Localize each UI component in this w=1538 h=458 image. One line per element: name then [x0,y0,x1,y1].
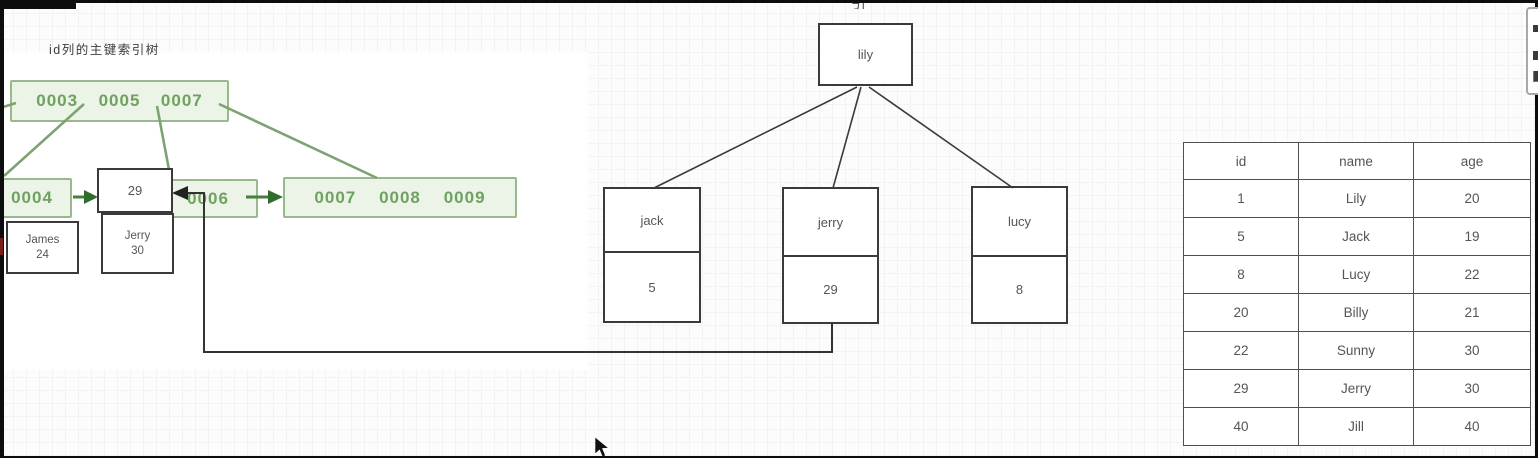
table-row: 20Billy21 [1184,294,1531,332]
btree-root-key: 0007 [161,91,203,111]
btree-leaf-key: 0008 [379,188,421,208]
tree-node-jerry[interactable]: jerry 29 [782,187,879,324]
tree-node-lily[interactable]: lily [818,23,913,86]
table-header: age [1414,143,1531,180]
table-row: 8Lucy22 [1184,256,1531,294]
tree-node-jack[interactable]: jack 5 [603,187,701,323]
table-row: 1Lily20 [1184,180,1531,218]
table-row: 22Sunny30 [1184,332,1531,370]
edge-toolbar-panel[interactable] [1526,7,1538,95]
table-row: 29Jerry30 [1184,370,1531,408]
table-row: 5Jack19 [1184,218,1531,256]
diagram-title: id列的主键索引树 [49,39,160,58]
toolbar-icon-fragment[interactable] [1533,71,1538,82]
tree-node-lucy[interactable]: lucy 8 [971,186,1068,324]
table-header: name [1299,143,1414,180]
frame-edge-top [0,0,1538,3]
btree-root-node[interactable]: 0003 0005 0007 [10,80,229,122]
red-edge-mark [0,238,3,255]
btree-leaf-node-0007-0009[interactable]: 0007 0008 0009 [283,177,517,218]
table-header-row: id name age [1184,143,1531,180]
record-box-james[interactable]: James 24 [6,221,79,274]
btree-root-key: 0005 [99,91,141,111]
table-header: id [1184,143,1299,180]
frame-edge-left [0,0,4,458]
btree-leaf-key: 0007 [314,188,356,208]
records-table[interactable]: id name age 1Lily20 5Jack19 8Lucy22 20Bi… [1183,142,1531,446]
btree-leaf-node-0004[interactable]: 0004 [0,178,72,218]
record-box-jerry[interactable]: Jerry 30 [101,213,174,274]
btree-root-key: 0003 [36,91,78,111]
frame-edge-notch [0,0,76,9]
btree-leaf-key: 0009 [444,188,486,208]
key-box-29[interactable]: 29 [97,168,173,213]
toolbar-icon-fragment[interactable] [1533,25,1538,32]
toolbar-icon-fragment[interactable] [1533,51,1538,60]
table-row: 40Jill40 [1184,408,1531,446]
